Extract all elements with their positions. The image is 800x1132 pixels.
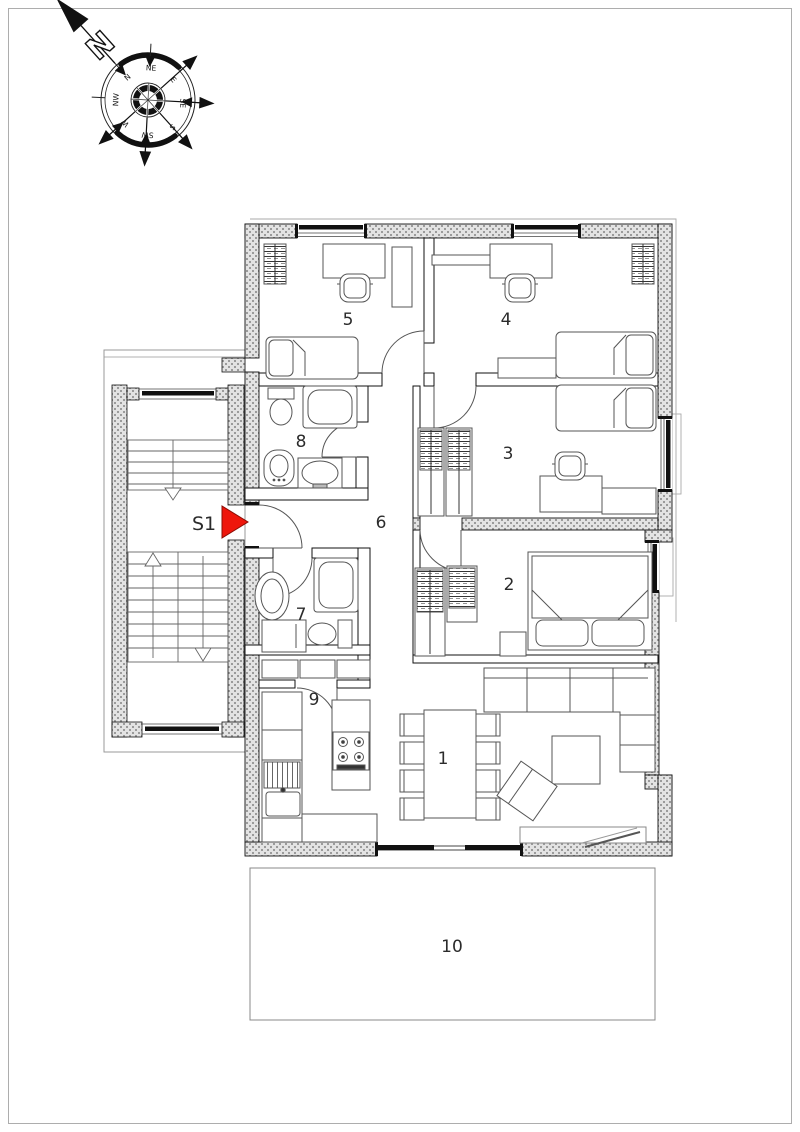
compass-label-e: E bbox=[169, 75, 179, 85]
bed-room4 bbox=[556, 332, 656, 378]
room-label-9: 9 bbox=[309, 690, 320, 710]
bed-room5 bbox=[266, 337, 358, 379]
desk-room5 bbox=[323, 244, 385, 278]
wall-room3-room2 bbox=[413, 518, 658, 530]
bedside-bench-room2 bbox=[500, 632, 526, 656]
entrance-label: S1 bbox=[192, 513, 216, 535]
radiator-room4 bbox=[632, 244, 654, 284]
washbasin-bath8 bbox=[298, 458, 342, 488]
dresser-room4 bbox=[498, 358, 556, 378]
stairs-upper-icon bbox=[128, 440, 228, 500]
room-label-6: 6 bbox=[376, 513, 387, 533]
furniture bbox=[255, 244, 656, 847]
shelf-room4 bbox=[432, 255, 490, 265]
room-label-1: 1 bbox=[438, 749, 449, 769]
chair-room5 bbox=[337, 274, 373, 302]
toilet-bath7 bbox=[308, 620, 352, 648]
coffee-table-icon bbox=[552, 736, 600, 784]
door-entrance bbox=[259, 505, 302, 548]
terrace-glass-door bbox=[375, 842, 523, 856]
stove-icon bbox=[333, 732, 369, 770]
stair-window-top bbox=[139, 389, 216, 399]
door-room5 bbox=[382, 331, 424, 373]
bathtub-bath8 bbox=[303, 386, 357, 428]
compass-label-nw: NW bbox=[111, 92, 121, 106]
entrance-arrow-icon bbox=[222, 506, 248, 538]
kitchen-counter-bottom bbox=[302, 814, 377, 842]
compass-arrows bbox=[96, 53, 239, 192]
door-room3 bbox=[434, 386, 476, 428]
armchair-icon bbox=[497, 761, 557, 821]
window-room5 bbox=[295, 224, 367, 238]
compass-center bbox=[124, 76, 172, 124]
hall-closet bbox=[262, 660, 370, 678]
washbasin-bath7 bbox=[255, 572, 289, 620]
compass-rose-icon: N NE E SE S SW W NW N bbox=[8, 0, 240, 192]
wardrobe-room2-b bbox=[447, 566, 477, 622]
bidet-bath8 bbox=[264, 450, 294, 486]
entrance-marker: S1 bbox=[192, 506, 248, 538]
room-label-5: 5 bbox=[343, 310, 354, 330]
bed-room3 bbox=[556, 385, 656, 431]
window-room3 bbox=[658, 416, 672, 492]
compass-label-se: SE bbox=[178, 98, 187, 108]
compass-label-sw: SW bbox=[141, 130, 154, 140]
compass-label-ne: NE bbox=[146, 63, 157, 73]
cabinet-room5 bbox=[392, 247, 412, 307]
entrance-door-posts bbox=[245, 502, 259, 549]
desk-room3 bbox=[540, 476, 656, 514]
wardrobe-room3-b bbox=[446, 428, 472, 516]
room-label-2: 2 bbox=[504, 575, 515, 595]
stair-window-bottom bbox=[142, 724, 222, 734]
double-bed-room2 bbox=[528, 552, 652, 650]
door-room2 bbox=[420, 530, 461, 571]
dining-table-icon bbox=[424, 710, 476, 818]
radiator-room5 bbox=[264, 244, 286, 284]
window-room4 bbox=[511, 224, 581, 238]
room-label-4: 4 bbox=[501, 310, 512, 330]
chair-room4 bbox=[502, 274, 538, 302]
toilet-bath8 bbox=[268, 388, 294, 425]
compass-label-n: N bbox=[122, 72, 132, 82]
north-arrow-icon: N bbox=[48, 0, 125, 71]
room-label-3: 3 bbox=[503, 444, 514, 464]
wardrobe-room2-a bbox=[415, 568, 445, 656]
wardrobe-room3-a bbox=[418, 428, 444, 516]
shower-bath7 bbox=[314, 558, 358, 612]
room-label-10: 10 bbox=[441, 937, 463, 957]
floor-plan-page: N NE E SE S SW W NW N bbox=[0, 0, 800, 1132]
floor-plan-drawing: N NE E SE S SW W NW N bbox=[0, 0, 800, 1132]
chair-room3 bbox=[552, 452, 588, 480]
stairs-main-icon bbox=[128, 552, 228, 662]
desk-room4 bbox=[490, 244, 552, 278]
room-label-8: 8 bbox=[296, 432, 307, 452]
room-label-7: 7 bbox=[296, 605, 307, 625]
kitchen-counter-left bbox=[262, 692, 302, 842]
stairwell bbox=[104, 350, 245, 752]
